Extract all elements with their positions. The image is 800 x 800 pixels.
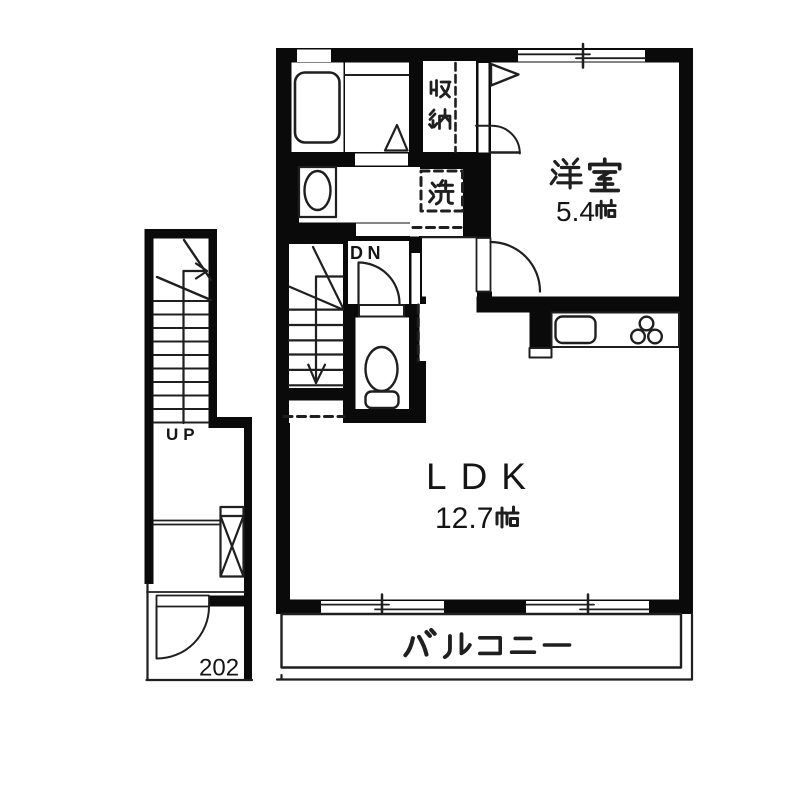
svg-text:5.4: 5.4 (556, 196, 595, 227)
svg-text:202: 202 (199, 655, 239, 682)
svg-text:LDK: LDK (426, 456, 540, 497)
svg-text:UP: UP (166, 425, 200, 444)
svg-text:DN: DN (350, 243, 385, 263)
svg-text:12.7: 12.7 (435, 502, 493, 535)
